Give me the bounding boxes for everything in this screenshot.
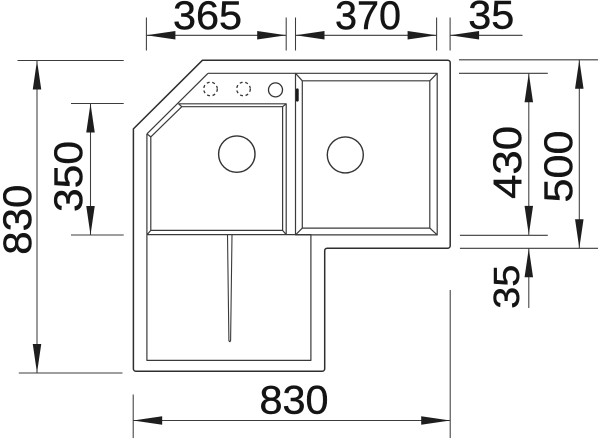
svg-text:35: 35 bbox=[468, 0, 514, 38]
svg-text:430: 430 bbox=[486, 126, 530, 199]
svg-text:35: 35 bbox=[486, 265, 527, 309]
svg-text:370: 370 bbox=[335, 0, 401, 38]
svg-text:830: 830 bbox=[260, 378, 329, 422]
svg-text:350: 350 bbox=[47, 141, 91, 212]
svg-text:830: 830 bbox=[0, 185, 40, 255]
svg-text:365: 365 bbox=[173, 0, 242, 38]
svg-text:500: 500 bbox=[537, 131, 581, 203]
